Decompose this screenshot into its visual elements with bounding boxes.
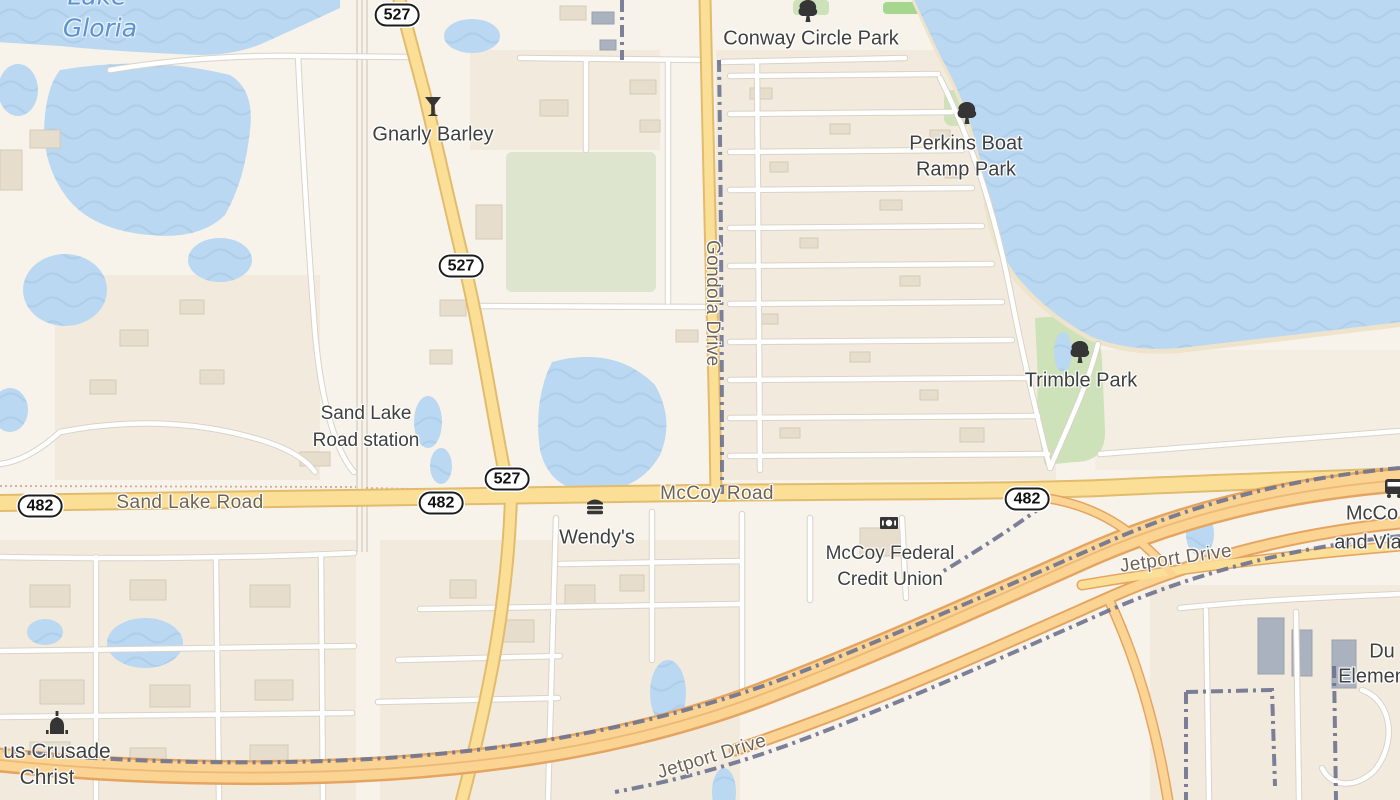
route-shield-482: 482 bbox=[18, 495, 63, 518]
route-shield-527: 527 bbox=[375, 4, 420, 27]
poi-label-wendys: Wendy's bbox=[559, 526, 635, 551]
route-shield-482: 482 bbox=[419, 492, 464, 515]
poi-label-mccoy-cu-line1: McCoy Federal bbox=[826, 542, 955, 566]
poi-label-perkins-line1: Perkins Boat bbox=[909, 132, 1022, 157]
map-tiles bbox=[0, 0, 1400, 800]
poi-label-conway-circle-park: Conway Circle Park bbox=[723, 27, 899, 52]
route-shield-482: 482 bbox=[1005, 488, 1050, 511]
lake-gloria-label-line2: Gloria bbox=[63, 12, 137, 43]
poi-label-station-line2: Road station bbox=[313, 429, 420, 453]
poi-label-crusade-line2: Christ bbox=[20, 765, 75, 791]
bank-icon bbox=[880, 517, 898, 529]
bus-icon bbox=[1385, 479, 1400, 498]
poi-label-station-line1: Sand Lake bbox=[321, 402, 412, 426]
route-shield-527: 527 bbox=[439, 255, 484, 278]
route-shield-527: 527 bbox=[485, 468, 530, 491]
poi-label-mccoy-cu-line2: Credit Union bbox=[837, 568, 943, 592]
poi-label-elementary-line1: Du bbox=[1369, 640, 1395, 665]
tree-icon bbox=[799, 0, 818, 22]
map-canvas[interactable]: Lake Gloria Conway Circle Park Perkins B… bbox=[0, 0, 1400, 800]
poi-label-crusade-line1: us Crusade bbox=[3, 739, 110, 765]
railway-line bbox=[357, 0, 367, 552]
lake-gloria-label-line1: Lake bbox=[67, 0, 126, 12]
road-label-mccoy-road: McCoy Road bbox=[660, 482, 774, 506]
road-label-gondola-drive: Gondola Drive bbox=[700, 240, 724, 367]
road-label-sand-lake-road: Sand Lake Road bbox=[116, 491, 263, 515]
poi-label-elementary-line2: Elemen bbox=[1338, 665, 1400, 690]
poi-label-perkins-line2: Ramp Park bbox=[916, 158, 1016, 183]
poi-label-mccoy-via-line1: McCo bbox=[1346, 502, 1398, 527]
poi-label-trimble-park: Trimble Park bbox=[1025, 369, 1138, 394]
poi-label-mccoy-via-line2: and Via bbox=[1334, 531, 1400, 556]
poi-label-gnarly-barley: Gnarly Barley bbox=[372, 123, 493, 148]
burger-icon bbox=[587, 500, 603, 515]
